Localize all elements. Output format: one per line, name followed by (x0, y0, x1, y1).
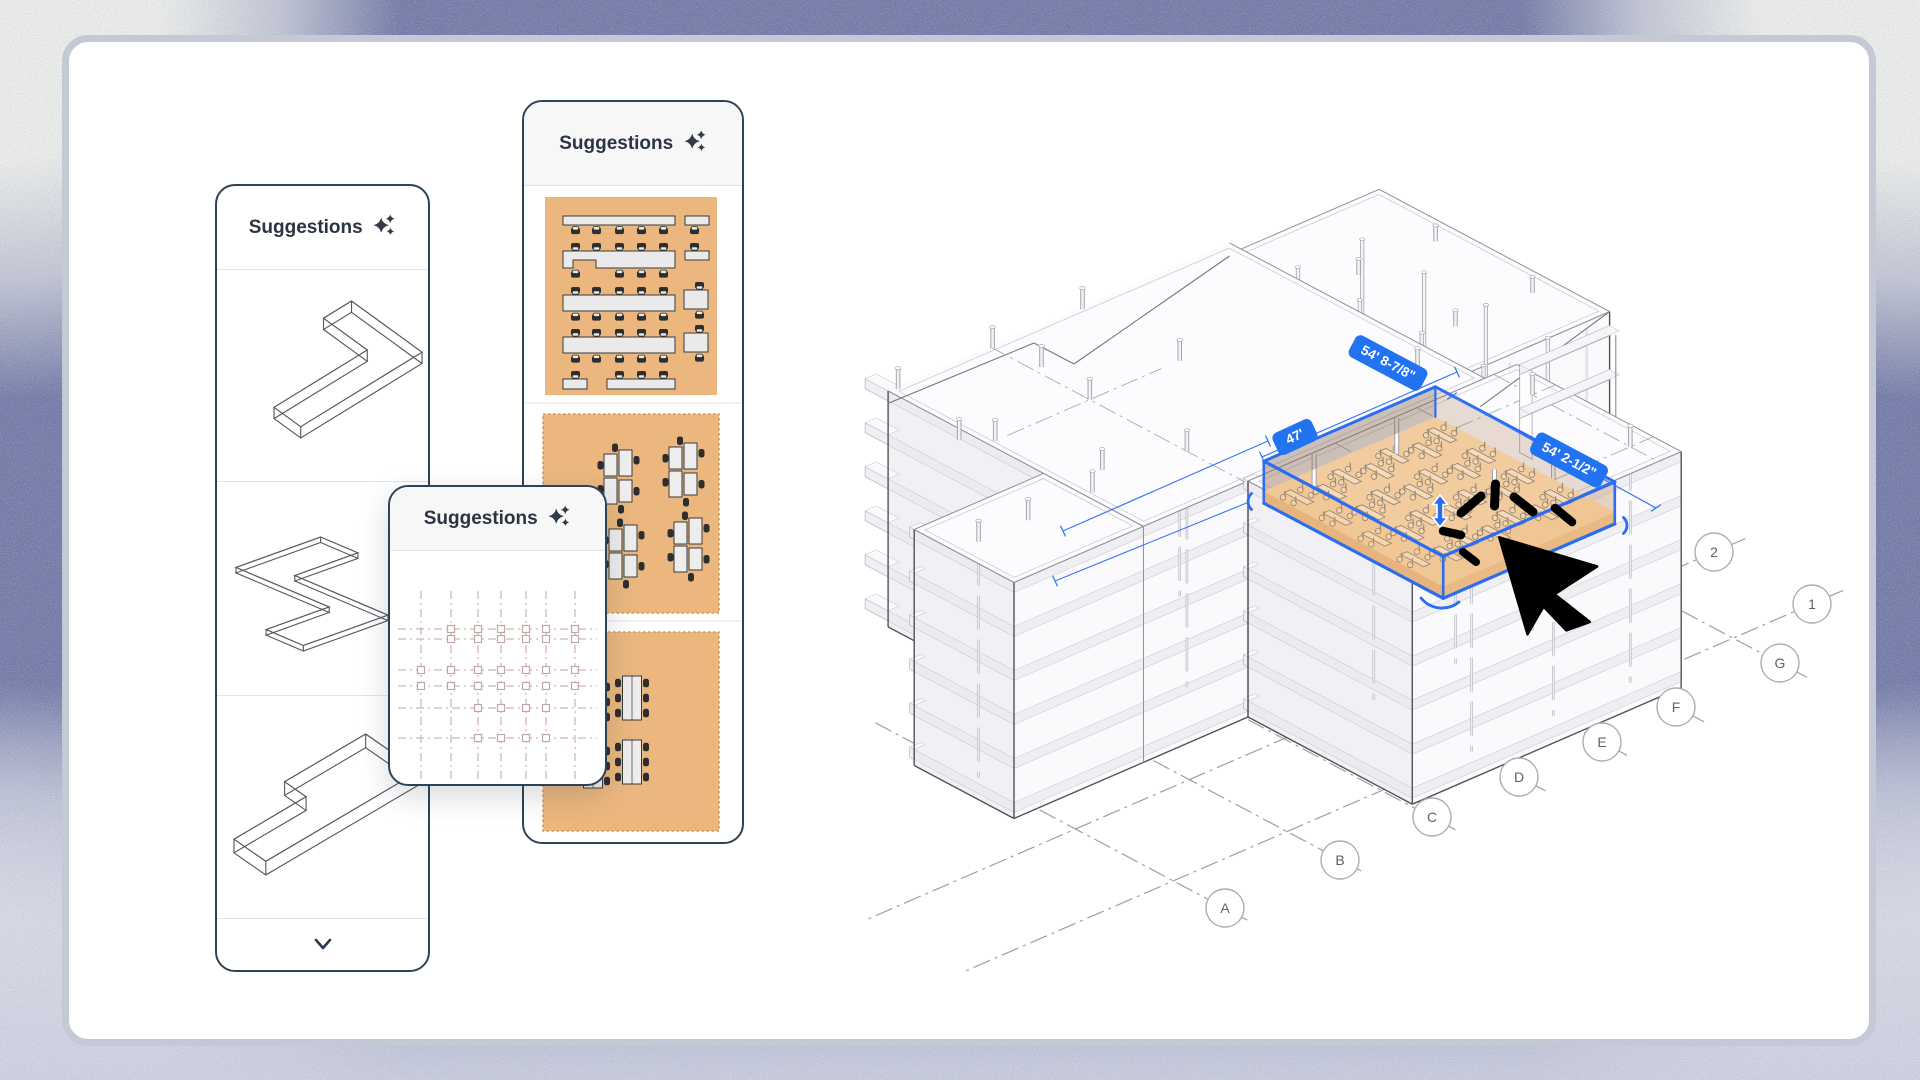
svg-text:2: 2 (1710, 544, 1718, 560)
svg-text:1: 1 (1808, 596, 1816, 612)
svg-text:C: C (1427, 809, 1437, 825)
svg-text:F: F (1672, 699, 1681, 715)
svg-text:D: D (1514, 769, 1524, 785)
svg-text:E: E (1597, 734, 1606, 750)
svg-text:G: G (1775, 655, 1786, 671)
svg-text:B: B (1335, 852, 1344, 868)
svg-text:A: A (1220, 900, 1230, 916)
